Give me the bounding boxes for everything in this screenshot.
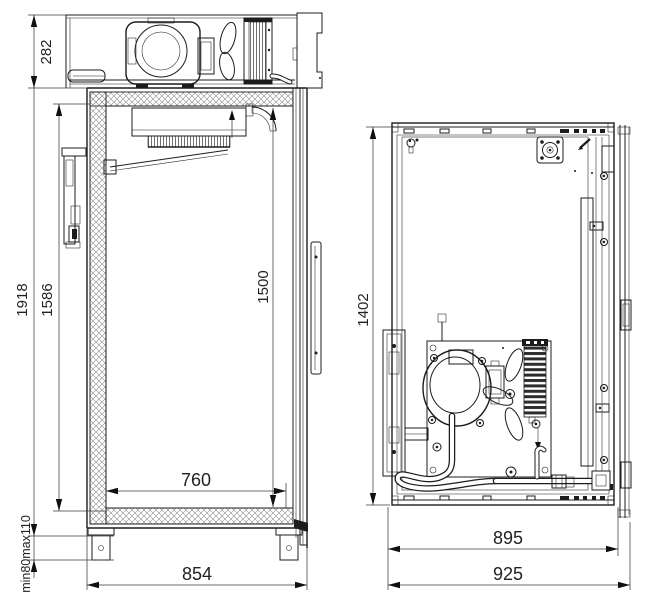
- left-wall-insulation: [90, 92, 106, 524]
- dim-overall-width: 854: [182, 564, 212, 584]
- dim-machinery-height: 282: [38, 39, 55, 64]
- dim-leg-height: min80max110: [19, 515, 33, 593]
- dim-interior-height: 1586: [39, 283, 56, 316]
- dim-overall-height: 1918: [14, 283, 31, 316]
- top-insulation: [90, 92, 293, 106]
- refrigerated-cabinet-drawing: 282 1918 1586 1500 min80max110 760 854 1…: [0, 0, 650, 612]
- dim-door-opening-height: 1500: [255, 270, 272, 303]
- door-edge-strip: [618, 125, 631, 518]
- dim-back-overall-width: 925: [493, 564, 523, 584]
- bottom-insulation: [106, 508, 293, 524]
- technical-drawing-page: 282 1918 1586 1500 min80max110 760 854 1…: [0, 0, 650, 612]
- dim-back-body-width: 895: [493, 528, 523, 548]
- dim-interior-width: 760: [181, 470, 211, 490]
- dim-back-body-height: 1402: [355, 293, 372, 326]
